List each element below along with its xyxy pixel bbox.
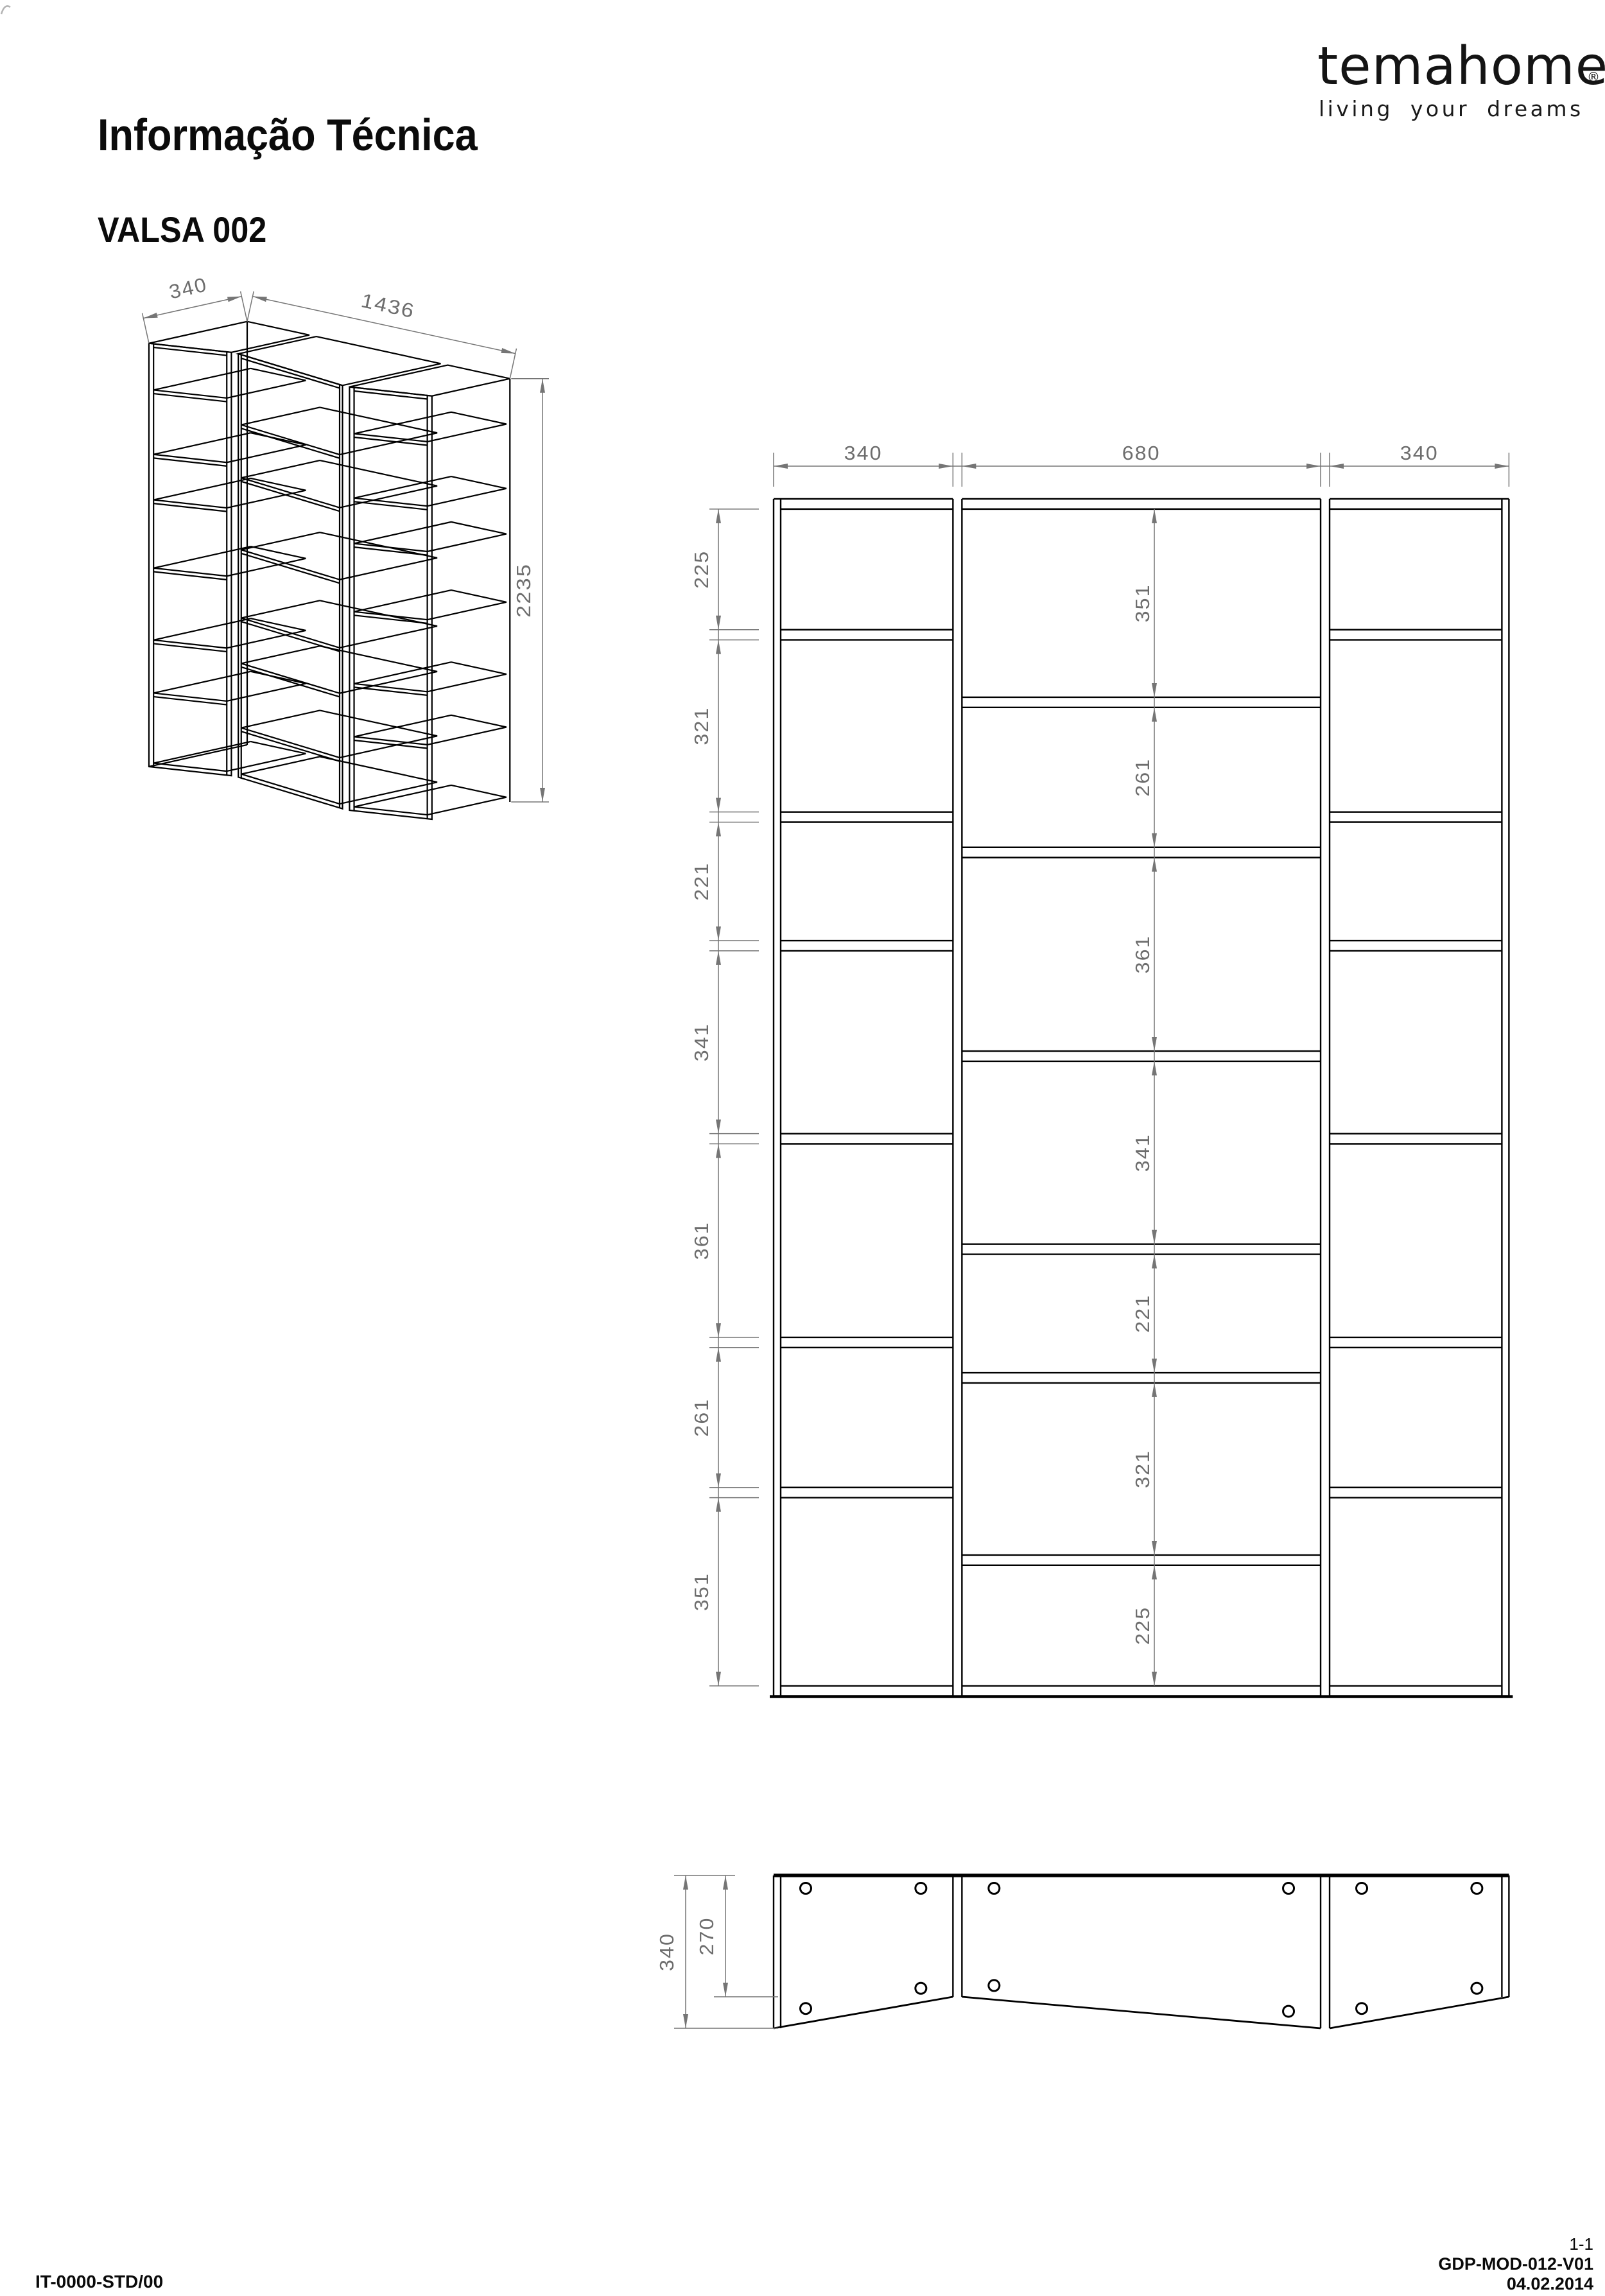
dim-label: 321	[1131, 1450, 1154, 1488]
sheet-number: 1-1	[1438, 2234, 1593, 2254]
dim-label: 221	[690, 862, 713, 901]
screw-hole	[1283, 1883, 1294, 1894]
dim-label: 225	[690, 550, 713, 589]
dim-label: 341	[1131, 1133, 1154, 1172]
dim-label: 261	[690, 1398, 713, 1437]
dim-label: 261	[1131, 758, 1154, 797]
dim-label: 361	[1131, 935, 1154, 973]
dim-label: 225	[1131, 1606, 1154, 1645]
technical-drawing: 3406803402253212213413612613513512613613…	[0, 0, 1605, 2296]
dim-label: 351	[690, 1572, 713, 1611]
dim-label: 340	[167, 273, 209, 303]
screw-hole	[915, 1883, 926, 1894]
screw-hole	[1471, 1883, 1482, 1894]
plan-view: 340270	[655, 1875, 1509, 2028]
dim-label: 351	[1131, 584, 1154, 622]
technical-sheet-page: Informação Técnica VALSA 002 temahome ® …	[0, 0, 1605, 2296]
screw-hole	[1357, 1883, 1367, 1894]
screw-hole	[1283, 2006, 1294, 2017]
screw-hole	[1471, 1983, 1482, 1994]
dim-label: 341	[690, 1023, 713, 1061]
dim-label: 680	[1122, 442, 1161, 464]
screw-hole	[801, 2003, 811, 2014]
screw-hole	[915, 1983, 926, 1994]
doc-reference: GDP-MOD-012-V01	[1438, 2254, 1593, 2274]
dim-label: 361	[690, 1221, 713, 1260]
screw-hole	[1357, 2003, 1367, 2014]
front-view: 3406803402253212213413612613513512613613…	[690, 442, 1513, 1697]
doc-meta: 1-1 GDP-MOD-012-V01 04.02.2014	[1438, 2234, 1593, 2294]
screw-hole	[989, 1980, 1000, 1991]
dim-label: 321	[690, 707, 713, 745]
isometric-view: 34014362235	[143, 273, 549, 819]
dim-label: 340	[844, 442, 883, 464]
dim-label: 340	[1400, 442, 1439, 464]
doc-date: 04.02.2014	[1438, 2274, 1593, 2294]
dim-label: 270	[695, 1917, 718, 1956]
dim-label: 221	[1131, 1294, 1154, 1333]
dim-label: 2235	[512, 563, 535, 618]
doc-code: IT-0000-STD/00	[35, 2272, 163, 2292]
screw-hole	[989, 1883, 1000, 1894]
dim-label: 340	[655, 1933, 678, 1971]
screw-hole	[801, 1883, 811, 1894]
dim-label: 1436	[359, 289, 417, 322]
